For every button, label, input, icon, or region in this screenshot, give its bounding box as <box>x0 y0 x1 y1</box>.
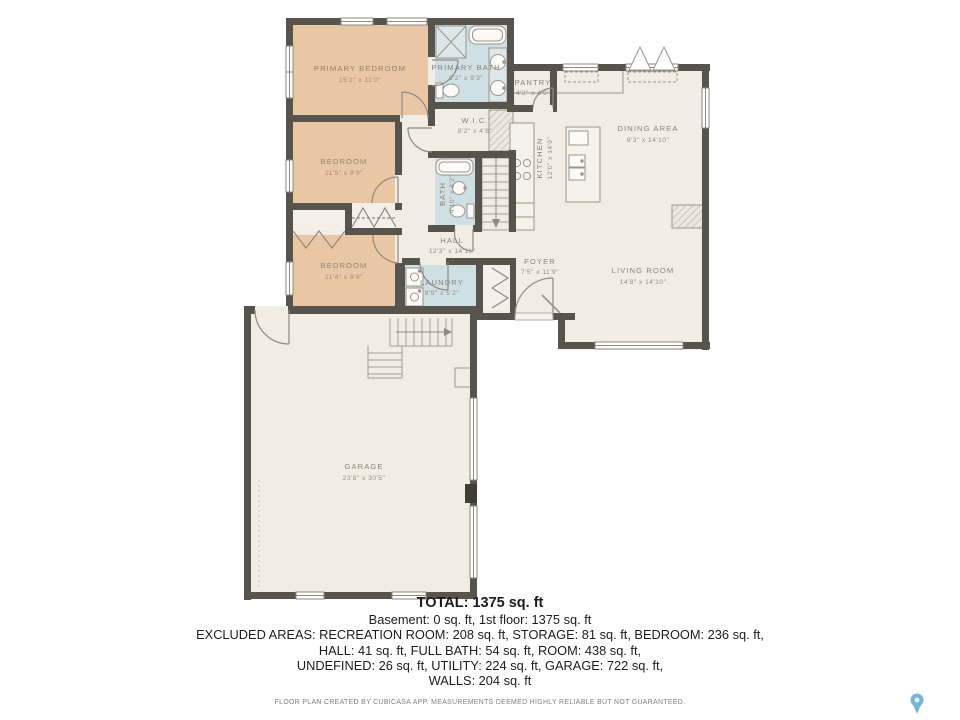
pin-hole <box>915 698 920 703</box>
floor-plan-page: PRIMARY BEDROOM 15'2" x 11'0" PRIMARY BA… <box>0 0 960 720</box>
room-dims: 11'5" x 8'9" <box>325 170 363 177</box>
room-dims: 12'3" x 14'11" <box>429 248 475 255</box>
wic-shelving <box>489 110 513 151</box>
room-dims: 7'5" x 11'9" <box>521 269 559 276</box>
closet-bedroom-3 <box>292 210 345 231</box>
kitchen-island <box>566 127 600 202</box>
summary-line: HALL: 41 sq. ft, FULL BATH: 54 sq. ft, R… <box>0 643 960 658</box>
room-name: FOYER <box>524 257 556 266</box>
room-name: BEDROOM <box>321 261 368 270</box>
fireplace <box>672 205 703 228</box>
room-name: W.I.C. <box>461 116 488 125</box>
room-dims: 4'10" x 8'2" <box>449 175 456 214</box>
bathtub <box>469 26 506 44</box>
room-name: PRIMARY BATH <box>431 63 500 72</box>
vanity-sinks <box>489 48 507 102</box>
room-dims: 8'2" x 9'3" <box>449 75 483 82</box>
garage-wall-panel <box>465 484 477 503</box>
pin-tail <box>913 705 921 715</box>
room-name: DINING AREA <box>617 124 678 133</box>
summary-line: EXCLUDED AREAS: RECREATION ROOM: 208 sq.… <box>0 627 960 642</box>
room-dims: 8'2" x 4'8" <box>458 128 492 135</box>
cubicasa-disclaimer: FLOOR PLAN CREATED BY CUBICASA APP. MEAS… <box>0 699 960 706</box>
shower <box>436 26 466 58</box>
location-pin-icon <box>905 688 931 718</box>
closet-foyer <box>483 265 510 310</box>
room-name: KITCHEN <box>535 137 544 178</box>
room-name: BEDROOM <box>321 157 368 166</box>
room-dims: 4'2" x 4'0" <box>516 90 550 97</box>
room-dims: 23'8" x 30'5" <box>343 475 386 482</box>
room-name: LAUNDRY <box>420 278 464 287</box>
room-dims: 9'3" x 14'10" <box>627 137 670 144</box>
room-dims: 14'8" x 14'10" <box>620 279 667 286</box>
floor-garage <box>244 306 477 599</box>
room-name: GARAGE <box>344 462 383 471</box>
summary-line: UNDEFINED: 26 sq. ft, UTILITY: 224 sq. f… <box>0 658 960 673</box>
room-dims: 12'0" x 14'9" <box>547 137 554 180</box>
summary-line: Basement: 0 sq. ft, 1st floor: 1375 sq. … <box>0 612 960 627</box>
front-door-threshold <box>515 313 553 320</box>
area-summary: TOTAL: 1375 sq. ft Basement: 0 sq. ft, 1… <box>0 595 960 688</box>
room-name: HALL <box>440 236 463 245</box>
room-dims: 11'4" x 8'8" <box>325 274 363 281</box>
total-area: TOTAL: 1375 sq. ft <box>0 595 960 612</box>
summary-line: WALLS: 204 sq. ft <box>0 673 960 688</box>
room-dims: 8'5" x 5'2" <box>425 290 459 297</box>
bathtub-2 <box>436 159 473 175</box>
room-name: BATH <box>438 182 447 206</box>
room-name: LIVING ROOM <box>612 266 675 275</box>
room-name: PANTRY <box>515 78 552 87</box>
room-name: PRIMARY BEDROOM <box>314 64 406 73</box>
room-dims: 15'2" x 11'0" <box>339 77 381 84</box>
